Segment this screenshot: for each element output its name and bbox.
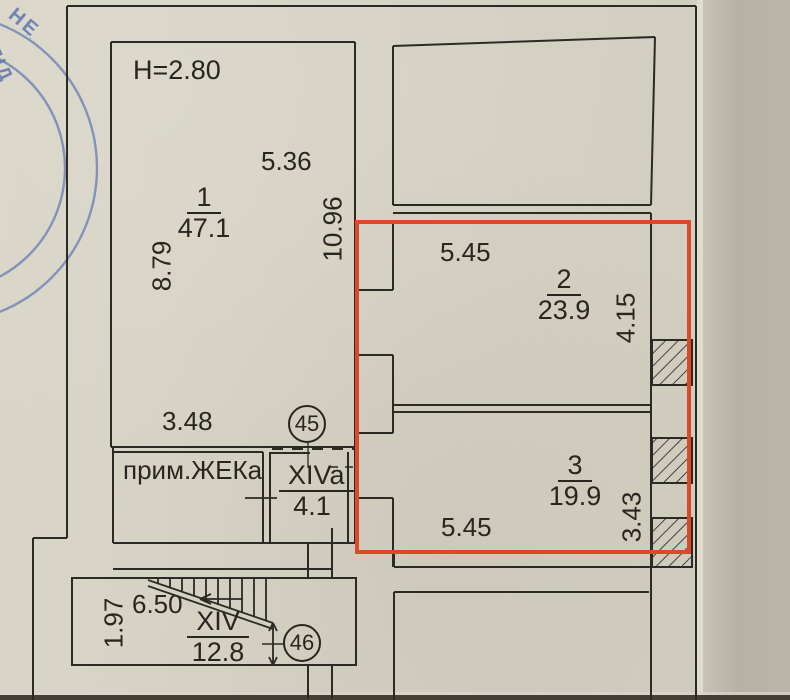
roomXIVa-area: 4.1 bbox=[279, 492, 345, 521]
room3-number: 3 bbox=[558, 451, 591, 482]
unit-46-marker: 46 bbox=[283, 624, 321, 662]
ceiling-height-label: H=2.80 bbox=[133, 55, 221, 86]
unit-45-number: 45 bbox=[295, 411, 319, 437]
floorplan-photo: НЕ ПІД ···· H=2.80 5.36 8.79 10.96 3.48 … bbox=[0, 0, 790, 700]
unit-46-number: 46 bbox=[290, 630, 314, 656]
room1-number-area: 1 47.1 bbox=[173, 183, 235, 243]
room1-number: 1 bbox=[187, 183, 220, 214]
roomXIV-area: 12.8 bbox=[187, 638, 249, 667]
roomXIVa-number-area: XIVa 4.1 bbox=[279, 461, 345, 521]
room2-number-area: 2 23.9 bbox=[532, 265, 596, 325]
roomXIV-number-area: XIV 12.8 bbox=[187, 607, 249, 667]
stamp-arcs bbox=[0, 13, 97, 323]
dim-room1-top: 5.36 bbox=[261, 146, 312, 177]
dim-room2-top: 5.45 bbox=[440, 237, 491, 268]
dim-room1-left: 8.79 bbox=[147, 241, 178, 292]
roomXIVa-number: XIVa bbox=[279, 461, 354, 492]
dim-stairs-width: 6.50 bbox=[132, 589, 183, 620]
zheka-room-label: прим.ЖЕКа bbox=[123, 455, 262, 486]
roomXIV-number: XIV bbox=[187, 607, 249, 638]
room3-number-area: 3 19.9 bbox=[543, 451, 607, 511]
dim-room3-bottom: 5.45 bbox=[441, 512, 492, 543]
dim-room1-right: 10.96 bbox=[318, 196, 349, 261]
floorplan-linework bbox=[0, 0, 790, 700]
room2-area: 23.9 bbox=[532, 296, 596, 325]
room1-area: 47.1 bbox=[173, 214, 235, 243]
room3-area: 19.9 bbox=[543, 482, 607, 511]
room2-number: 2 bbox=[547, 265, 580, 296]
dim-stairs-height: 1.97 bbox=[99, 598, 130, 649]
dim-room2-right: 4.15 bbox=[611, 293, 642, 344]
dim-room3-right: 3.43 bbox=[617, 492, 648, 543]
hatched-blocks bbox=[652, 340, 692, 567]
unit-45-marker: 45 bbox=[288, 405, 326, 443]
dim-room1-bottom: 3.48 bbox=[162, 406, 213, 437]
